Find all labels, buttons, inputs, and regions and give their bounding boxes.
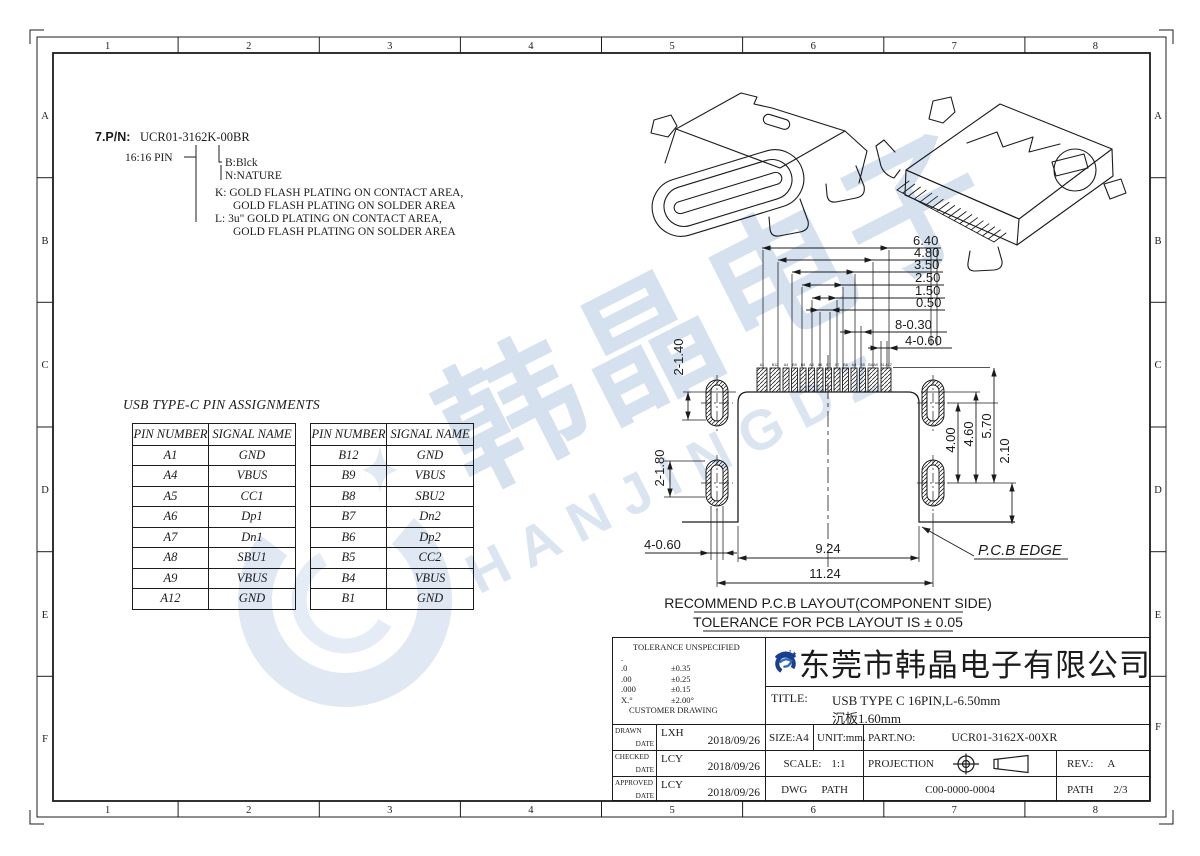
approved-by: LCY bbox=[661, 779, 683, 791]
svg-text:2: 2 bbox=[246, 805, 251, 816]
table-row: A8SBU1 bbox=[133, 547, 295, 568]
company-header: 东莞市韩晶电子有限公司 bbox=[765, 638, 1151, 686]
color-code-n: N:NATURE bbox=[225, 170, 282, 182]
drawn-by: LXH bbox=[661, 727, 684, 739]
drawn-value-cell: LXH 2018/09/26 bbox=[656, 724, 765, 750]
col-header-pin: PIN NUMBER bbox=[133, 424, 208, 445]
svg-text:A4: A4 bbox=[784, 363, 788, 367]
drawn-label-cell: DRAWN DATE bbox=[613, 724, 656, 750]
layout-notes: RECOMMEND P.C.B LAYOUT(COMPONENT SIDE) T… bbox=[664, 595, 991, 631]
svg-text:E: E bbox=[42, 610, 48, 621]
table-row: A6Dp1 bbox=[133, 506, 295, 527]
checked-label-cell: CHECKED DATE bbox=[613, 750, 656, 776]
svg-text:A6: A6 bbox=[818, 363, 822, 367]
table-row: B5CC2 bbox=[311, 547, 473, 568]
part-no-value: UCR01-3162X-00XR bbox=[951, 730, 1057, 745]
dim-2-1-40: 2-1.40 bbox=[671, 339, 686, 376]
part-number-prefix: 7.P/N: bbox=[95, 130, 130, 144]
col-header-signal: SIGNAL NAME bbox=[386, 424, 473, 445]
color-code-b: B:Blck bbox=[225, 157, 258, 169]
dimension-stack-labels: 6.40 4.80 3.50 2.50 1.50 0.50 8-0.30 4-0… bbox=[895, 233, 942, 348]
size-cell: SIZE:A4 bbox=[765, 724, 813, 750]
svg-text:4-0.60: 4-0.60 bbox=[905, 333, 942, 348]
table-row: B4VBUS bbox=[311, 568, 473, 589]
plating-code-l1: L: 3u" GOLD PLATING ON CONTACT AREA, bbox=[215, 213, 442, 225]
table-row: A5CC1 bbox=[133, 486, 295, 507]
title-block: TOLERANCE UNSPECIFIED . .0±0.35 .00±0.25… bbox=[612, 637, 1150, 801]
svg-text:A8: A8 bbox=[852, 363, 856, 367]
svg-text:8: 8 bbox=[1093, 41, 1098, 52]
customer-drawing-note: CUSTOMER DRAWING bbox=[621, 705, 765, 716]
dwg-number: C00-0000-0004 bbox=[925, 784, 995, 796]
svg-text:7: 7 bbox=[952, 805, 957, 816]
svg-text:3: 3 bbox=[387, 41, 392, 52]
approved-date: 2018/09/26 bbox=[708, 787, 760, 799]
drawing-sheet: 1 2 3 4 5 6 7 8 1 2 3 4 5 6 7 8 A B C D … bbox=[0, 0, 1200, 856]
table-row: A9VBUS bbox=[133, 568, 295, 589]
svg-text:6: 6 bbox=[811, 805, 816, 816]
svg-text:E: E bbox=[1155, 610, 1161, 621]
pin-table-a: PIN NUMBER SIGNAL NAME A1GND A4VBUS A5CC… bbox=[132, 423, 296, 610]
svg-text:B: B bbox=[1154, 236, 1161, 247]
pcb-layout-view: A1 B12 A4 B9 B8 A5 A6 B7 A7 B6 A8 B5 B4 … bbox=[644, 339, 1068, 587]
svg-text:5.70: 5.70 bbox=[979, 413, 994, 438]
plating-code-k1: K: GOLD FLASH PLATING ON CONTACT AREA, bbox=[215, 187, 463, 199]
svg-text:7: 7 bbox=[952, 41, 957, 52]
svg-text:4: 4 bbox=[528, 41, 534, 52]
svg-text:B6: B6 bbox=[843, 363, 847, 367]
part-no-cell: PART.NO: UCR01-3162X-00XR bbox=[863, 724, 1151, 750]
tolerance-title: TOLERANCE UNSPECIFIED bbox=[621, 642, 765, 653]
svg-text:C: C bbox=[41, 360, 48, 371]
rev-value: A bbox=[1107, 758, 1115, 770]
tolerance-box: TOLERANCE UNSPECIFIED . .0±0.35 .00±0.25… bbox=[613, 638, 765, 724]
dwg-number-cell: C00-0000-0004 bbox=[863, 776, 1056, 802]
svg-text:6: 6 bbox=[811, 41, 816, 52]
svg-text:4: 4 bbox=[528, 805, 534, 816]
sheet-path-cell: PATH 2/3 bbox=[1056, 776, 1151, 802]
svg-text:B5: B5 bbox=[860, 363, 864, 367]
dim-11-24: 11.24 bbox=[809, 566, 841, 581]
zone-col-label: 1 bbox=[105, 41, 110, 52]
rev-cell: REV.: A bbox=[1056, 750, 1151, 776]
unit-cell: UNIT:mm. bbox=[813, 724, 863, 750]
svg-text:5: 5 bbox=[669, 805, 674, 816]
dim-2-1-80: 2-1.80 bbox=[652, 450, 667, 487]
svg-text:1: 1 bbox=[105, 805, 110, 816]
checked-value-cell: LCY 2018/09/26 bbox=[656, 750, 765, 776]
solder-pads bbox=[757, 368, 891, 392]
svg-text:0.50: 0.50 bbox=[916, 295, 941, 310]
dim-9-24: 9.24 bbox=[815, 541, 840, 556]
svg-text:B4 A9: B4 A9 bbox=[868, 363, 878, 367]
svg-text:4.00: 4.00 bbox=[943, 427, 958, 452]
table-row: B7Dn2 bbox=[311, 506, 473, 527]
plating-code-l2: GOLD FLASH PLATING ON SOLDER AREA bbox=[233, 226, 456, 238]
drawing-title-cell: TITLE: USB TYPE C 16PIN,L-6.50mm 沉板1.60m… bbox=[765, 686, 1151, 724]
svg-text:A5: A5 bbox=[809, 363, 813, 367]
pad-pin-labels: A1 B12 A4 B9 B8 A5 A6 B7 A7 B6 A8 B5 B4 … bbox=[760, 363, 892, 367]
scale-value: 1:1 bbox=[831, 758, 845, 770]
company-name: 东莞市韩晶电子有限公司 bbox=[799, 640, 1151, 685]
table-row: A4VBUS bbox=[133, 465, 295, 486]
svg-text:A: A bbox=[41, 111, 49, 122]
pcb-edge-outline bbox=[682, 392, 1015, 522]
dim-4-0-60-holes: 4-0.60 bbox=[644, 537, 681, 552]
table-row: B6Dp2 bbox=[311, 527, 473, 548]
svg-text:F: F bbox=[42, 734, 48, 745]
col-header-pin: PIN NUMBER bbox=[311, 424, 386, 445]
checked-date: 2018/09/26 bbox=[708, 761, 760, 773]
pin-table-title: USB TYPE-C PIN ASSIGNMENTS bbox=[123, 397, 320, 413]
svg-text:2.10: 2.10 bbox=[997, 438, 1012, 463]
svg-text:B12: B12 bbox=[772, 363, 778, 367]
table-row: A12GND bbox=[133, 588, 295, 609]
svg-text:D: D bbox=[41, 485, 49, 496]
table-header-row: PIN NUMBER SIGNAL NAME bbox=[311, 424, 473, 445]
company-logo-icon bbox=[772, 640, 799, 684]
tolerance-note: TOLERANCE FOR PCB LAYOUT IS ± 0.05 bbox=[693, 614, 963, 630]
dimension-stack bbox=[762, 248, 990, 368]
svg-text:8-0.30: 8-0.30 bbox=[895, 317, 932, 332]
table-header-row: PIN NUMBER SIGNAL NAME bbox=[133, 424, 295, 445]
svg-text:F: F bbox=[1155, 722, 1161, 733]
table-row: A1GND bbox=[133, 445, 295, 466]
svg-text:A1: A1 bbox=[760, 363, 764, 367]
svg-text:B: B bbox=[41, 236, 48, 247]
pin-count-note: 16:16 PIN bbox=[125, 152, 173, 164]
col-header-signal: SIGNAL NAME bbox=[208, 424, 295, 445]
svg-text:B9: B9 bbox=[792, 363, 796, 367]
svg-text:2: 2 bbox=[246, 41, 251, 52]
pcb-edge-label: P.C.B EDGE bbox=[978, 542, 1063, 559]
approved-value-cell: LCY 2018/09/26 bbox=[656, 776, 765, 802]
svg-text:C: C bbox=[1154, 360, 1161, 371]
plating-code-k2: GOLD FLASH PLATING ON SOLDER AREA bbox=[233, 200, 456, 212]
dwg-path-cell: DWG PATH bbox=[765, 776, 863, 802]
drawn-date: 2018/09/26 bbox=[708, 735, 760, 747]
part-number-value: UCR01-3162K-00BR bbox=[140, 130, 250, 144]
svg-text:A: A bbox=[1154, 111, 1162, 122]
svg-text:B7: B7 bbox=[826, 363, 830, 367]
scale-cell: SCALE: 1:1 bbox=[765, 750, 863, 776]
approved-label-cell: APPROVED DATE bbox=[613, 776, 656, 802]
projection-cell: PROJECTION bbox=[863, 750, 1056, 776]
pin-table-b: PIN NUMBER SIGNAL NAME B12GND B9VBUS B8S… bbox=[310, 423, 474, 610]
svg-text:5: 5 bbox=[669, 41, 674, 52]
svg-text:B1 A12: B1 A12 bbox=[880, 363, 892, 367]
iso-view-front bbox=[645, 93, 867, 244]
svg-text:B8: B8 bbox=[801, 363, 805, 367]
table-row: B1GND bbox=[311, 588, 473, 609]
svg-text:8: 8 bbox=[1093, 805, 1098, 816]
recommend-note: RECOMMEND P.C.B LAYOUT(COMPONENT SIDE) bbox=[664, 595, 991, 611]
checked-by: LCY bbox=[661, 753, 683, 765]
table-row: B12GND bbox=[311, 445, 473, 466]
svg-text:A7: A7 bbox=[835, 363, 839, 367]
table-row: B9VBUS bbox=[311, 465, 473, 486]
projection-symbol-icon bbox=[950, 753, 1036, 775]
sheet-number: 2/3 bbox=[1114, 784, 1128, 796]
table-row: B8SBU2 bbox=[311, 486, 473, 507]
svg-text:4.60: 4.60 bbox=[961, 421, 976, 446]
svg-text:3: 3 bbox=[387, 805, 392, 816]
part-number-callout: 7.P/N: UCR01-3162K-00BR 16:16 PIN B:Blck… bbox=[95, 130, 463, 238]
svg-text:D: D bbox=[1154, 485, 1162, 496]
drawing-title-line1: USB TYPE C 16PIN,L-6.50mm bbox=[832, 693, 1000, 709]
bottom-dimensions bbox=[645, 506, 933, 587]
pcb-edge-callout: P.C.B EDGE bbox=[922, 527, 1068, 559]
table-row: A7Dn1 bbox=[133, 527, 295, 548]
title-label: TITLE: bbox=[771, 691, 808, 706]
